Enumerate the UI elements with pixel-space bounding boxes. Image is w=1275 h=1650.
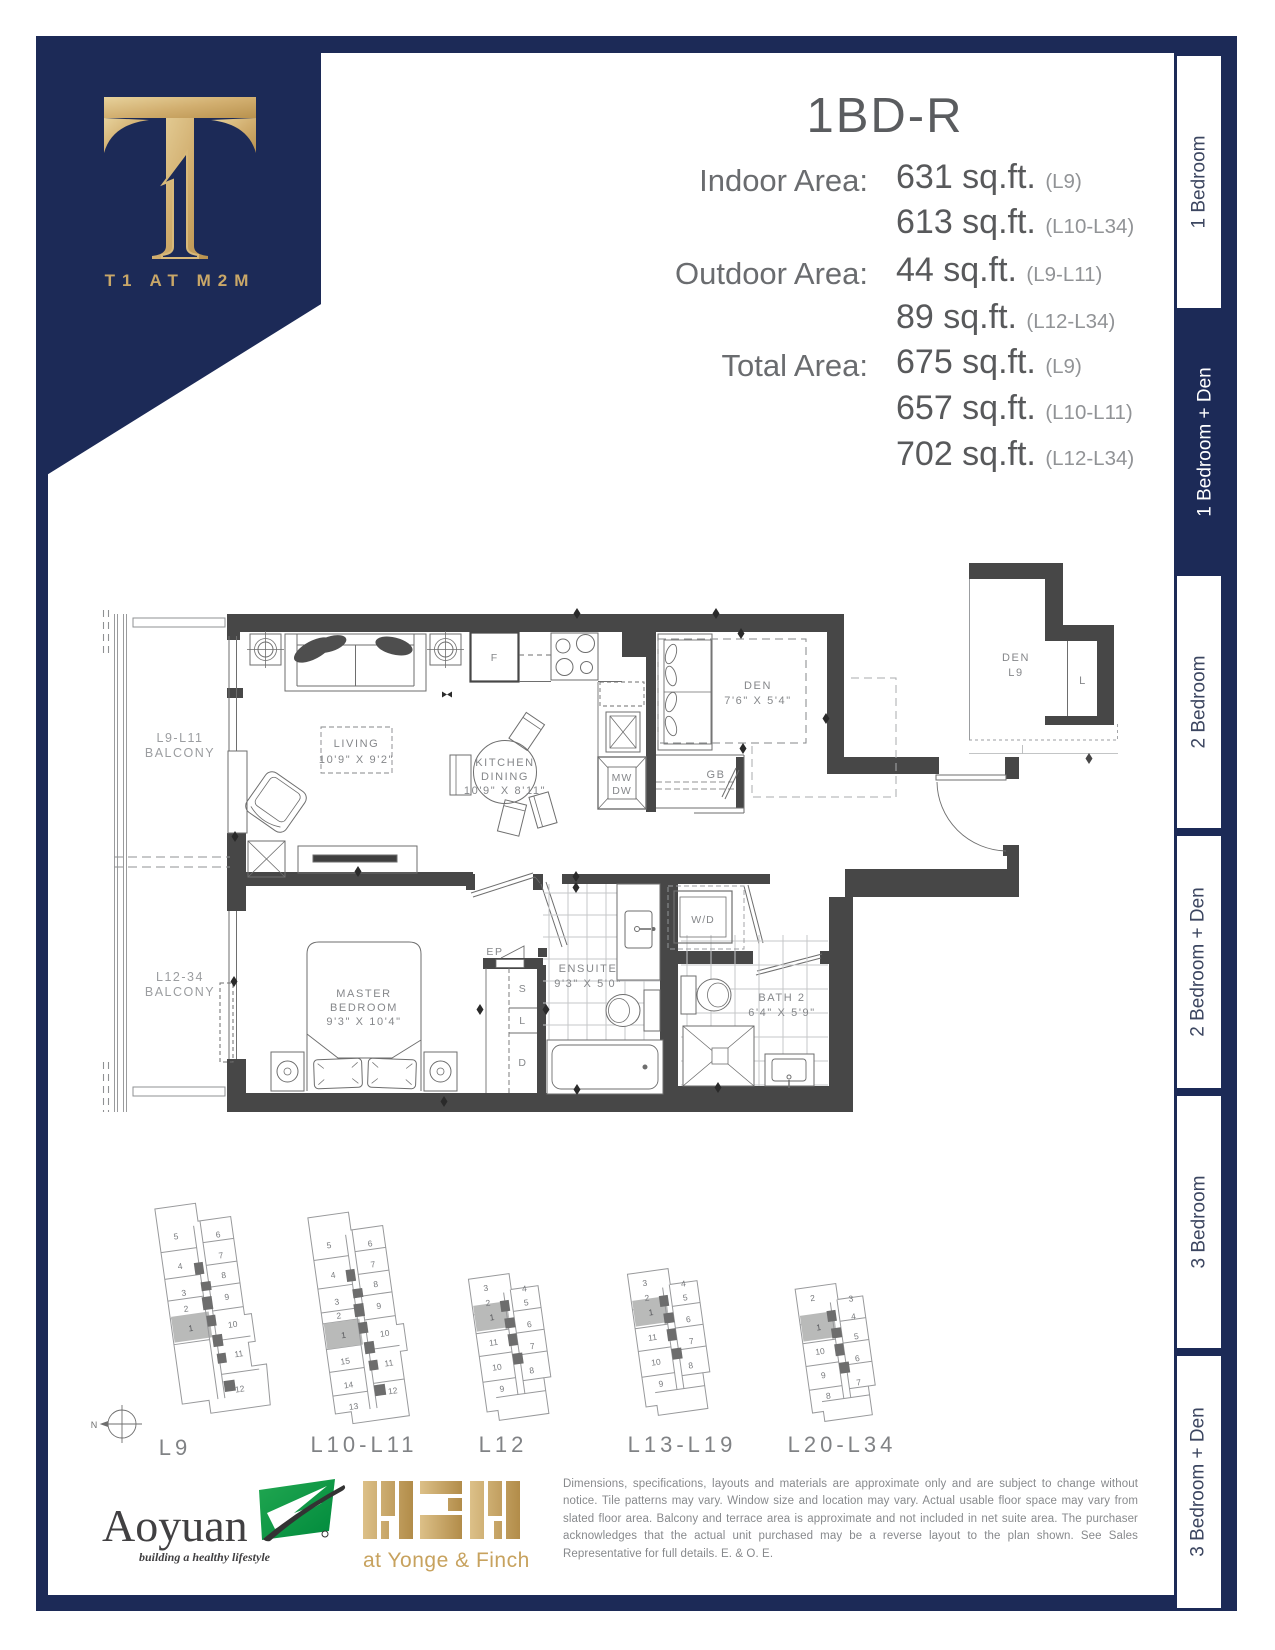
svg-text:DW: DW (612, 785, 632, 797)
svg-text:Aoyuan: Aoyuan (102, 1500, 248, 1551)
svg-text:6: 6 (526, 1319, 532, 1330)
svg-text:11: 11 (647, 1332, 657, 1343)
svg-text:9'3" X 10'4": 9'3" X 10'4" (326, 1016, 401, 1028)
svg-text:10: 10 (651, 1357, 662, 1368)
svg-text:building a healthy lifestyle: building a healthy lifestyle (139, 1550, 271, 1564)
svg-text:10: 10 (492, 1362, 503, 1373)
svg-text:S: S (519, 983, 528, 995)
svg-text:7: 7 (856, 1377, 862, 1388)
svg-text:15: 15 (340, 1355, 351, 1366)
svg-text:11: 11 (384, 1357, 394, 1368)
svg-text:DEN: DEN (1002, 652, 1030, 664)
svg-text:11: 11 (488, 1337, 498, 1348)
svg-text:9: 9 (658, 1378, 664, 1389)
svg-text:5: 5 (682, 1292, 688, 1303)
svg-text:3: 3 (334, 1296, 340, 1307)
svg-text:3: 3 (483, 1283, 489, 1294)
svg-text:13: 13 (348, 1401, 359, 1412)
svg-text:4: 4 (177, 1261, 183, 1272)
svg-text:L12: L12 (479, 1432, 528, 1457)
svg-text:at Yonge & Finch: at Yonge & Finch (363, 1549, 530, 1572)
svg-text:DINING: DINING (481, 771, 529, 783)
svg-text:10'9" X 8'11": 10'9" X 8'11" (464, 785, 546, 797)
svg-text:7'6" X 5'4": 7'6" X 5'4" (724, 695, 792, 707)
svg-text:8: 8 (373, 1279, 379, 1290)
svg-text:L: L (1079, 675, 1087, 687)
svg-text:10: 10 (379, 1328, 390, 1339)
svg-text:12: 12 (387, 1385, 398, 1396)
svg-text:GB: GB (706, 769, 725, 781)
svg-text:4: 4 (330, 1270, 336, 1281)
svg-text:6: 6 (685, 1314, 691, 1325)
svg-text:9: 9 (376, 1301, 382, 1312)
svg-text:11: 11 (234, 1348, 244, 1359)
svg-text:6'4" X 5'9": 6'4" X 5'9" (748, 1007, 816, 1019)
svg-text:7: 7 (529, 1341, 535, 1352)
svg-text:DEN: DEN (744, 680, 772, 692)
svg-text:MW: MW (612, 772, 633, 784)
svg-text:MASTER: MASTER (336, 988, 391, 1000)
svg-text:BEDROOM: BEDROOM (330, 1002, 398, 1014)
svg-text:2: 2 (485, 1297, 491, 1308)
svg-text:8: 8 (221, 1270, 227, 1281)
svg-text:EP: EP (486, 946, 503, 958)
svg-text:5: 5 (523, 1297, 529, 1308)
svg-text:W/D: W/D (691, 914, 714, 926)
svg-text:7: 7 (688, 1336, 694, 1347)
svg-text:10'9" X 9'2": 10'9" X 9'2" (319, 754, 394, 766)
svg-text:5: 5 (853, 1331, 859, 1342)
svg-text:4: 4 (680, 1278, 686, 1289)
svg-text:KITCHEN: KITCHEN (475, 757, 534, 769)
svg-text:2: 2 (644, 1292, 650, 1303)
svg-text:6: 6 (367, 1238, 373, 1249)
svg-text:14: 14 (343, 1379, 354, 1390)
svg-text:12: 12 (234, 1383, 245, 1394)
svg-text:7: 7 (370, 1259, 376, 1270)
svg-text:7: 7 (218, 1250, 224, 1261)
svg-text:L9: L9 (1008, 667, 1023, 679)
svg-text:3: 3 (848, 1293, 854, 1304)
svg-text:8: 8 (529, 1365, 535, 1376)
svg-text:6: 6 (215, 1229, 221, 1240)
svg-text:L20-L34: L20-L34 (788, 1432, 897, 1457)
svg-text:F: F (491, 652, 498, 664)
svg-text:5: 5 (326, 1240, 332, 1251)
svg-text:3: 3 (181, 1287, 187, 1298)
svg-text:LIVING: LIVING (334, 738, 380, 750)
svg-text:L10-L11: L10-L11 (310, 1432, 417, 1457)
svg-text:4: 4 (521, 1283, 527, 1294)
svg-text:10: 10 (227, 1319, 238, 1330)
svg-text:L13-L19: L13-L19 (628, 1432, 737, 1457)
svg-text:BALCONY: BALCONY (145, 985, 215, 999)
svg-text:ENSUITE: ENSUITE (559, 963, 618, 975)
svg-text:2: 2 (809, 1293, 815, 1304)
svg-text:L12-34: L12-34 (156, 970, 204, 984)
svg-text:BALCONY: BALCONY (145, 746, 215, 760)
svg-text:9: 9 (820, 1370, 826, 1381)
svg-text:4: 4 (850, 1311, 856, 1322)
svg-text:8: 8 (825, 1390, 831, 1401)
svg-text:9'3" X 5'0": 9'3" X 5'0" (554, 978, 622, 990)
svg-text:N: N (91, 1420, 98, 1430)
svg-text:8: 8 (688, 1360, 694, 1371)
svg-text:5: 5 (173, 1231, 179, 1242)
svg-text:2: 2 (336, 1310, 342, 1321)
svg-text:9: 9 (224, 1292, 230, 1303)
svg-text:L9-L11: L9-L11 (157, 731, 204, 745)
svg-text:BATH 2: BATH 2 (758, 992, 805, 1004)
svg-text:10: 10 (815, 1346, 826, 1357)
svg-text:9: 9 (499, 1383, 505, 1394)
svg-text:6: 6 (854, 1353, 860, 1364)
svg-text:3: 3 (642, 1278, 648, 1289)
svg-text:2: 2 (183, 1303, 189, 1314)
svg-text:L: L (519, 1015, 526, 1027)
svg-text:L9: L9 (159, 1435, 191, 1460)
svg-text:D: D (518, 1057, 527, 1069)
